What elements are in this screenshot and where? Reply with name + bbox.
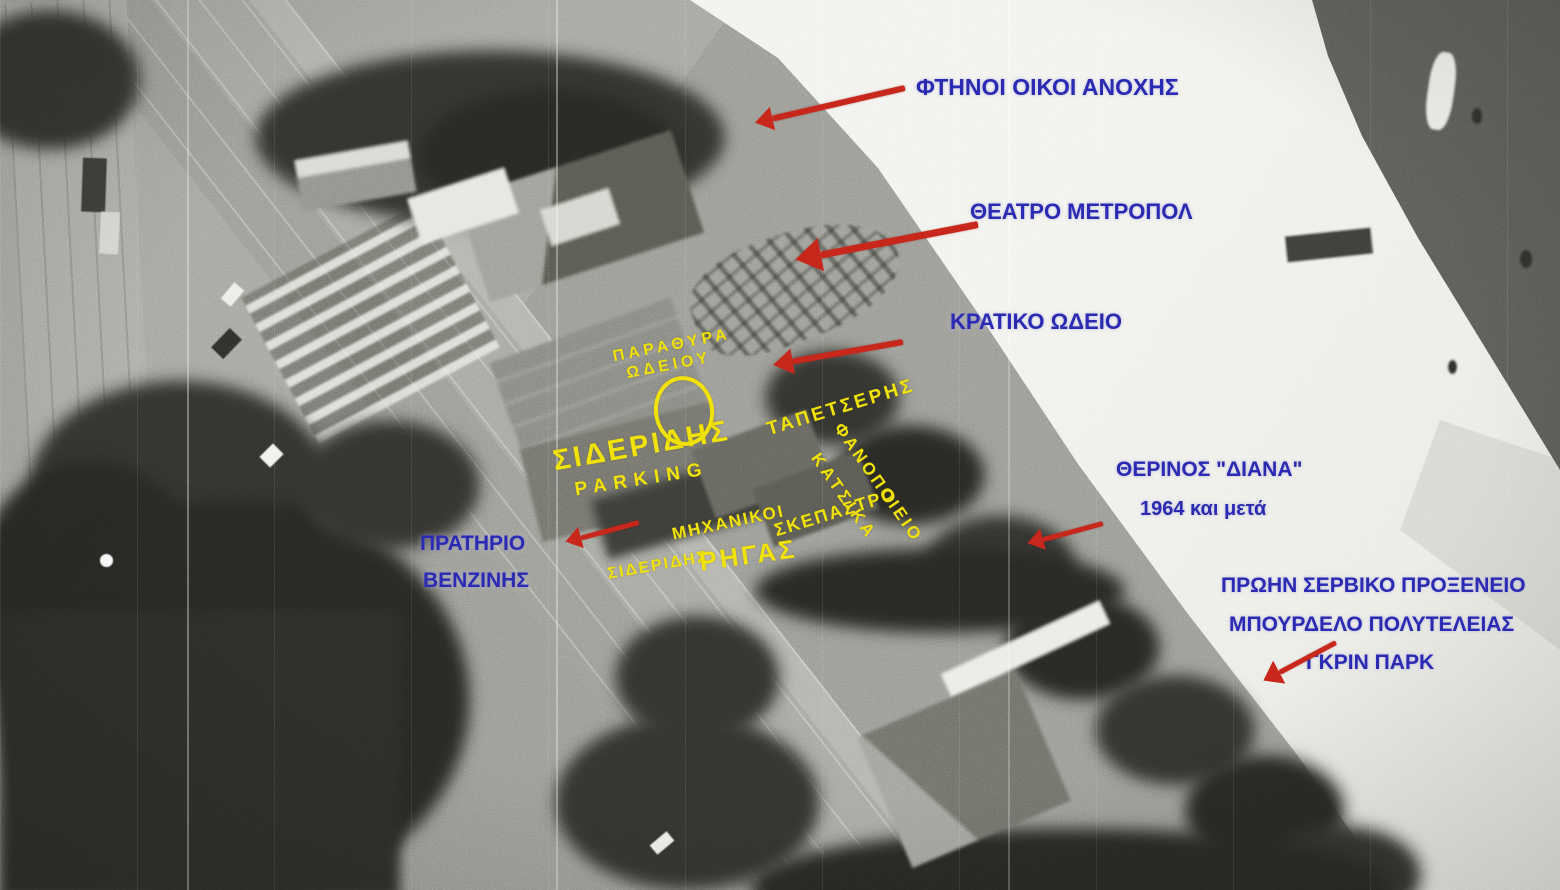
label-diana-cinema-line2: 1964 και μετά <box>1140 499 1266 519</box>
label-petrol-station-line2: ΒΕΝΖΙΝΗΣ <box>423 570 529 591</box>
label-state-conservatory: ΚΡΑΤΙΚΟ ΩΔΕΙΟ <box>950 311 1122 333</box>
annotated-aerial-photo: ΦΤΗΝΟΙ ΟΙΚΟΙ ΑΝΟΧΗΣ ΘΕΑΤΡΟ ΜΕΤΡΟΠΟΛ ΚΡΑΤ… <box>0 0 1560 890</box>
label-former-serbian-consulate: ΠΡΩΗΝ ΣΕΡΒΙΚΟ ΠΡΟΞΕΝΕΙΟ <box>1221 575 1526 596</box>
label-diana-cinema-line1: ΘΕΡΙΝΟΣ "ΔΙΑΝΑ" <box>1116 459 1302 480</box>
label-luxury-brothel: ΜΠΟΥΡΔΕΛΟ ΠΟΛΥΤΕΛΕΙΑΣ <box>1229 614 1514 635</box>
label-green-park: ΓΚΡΙΝ ΠΑΡΚ <box>1306 652 1434 673</box>
label-cheap-brothels: ΦΤΗΝΟΙ ΟΙΚΟΙ ΑΝΟΧΗΣ <box>916 76 1179 99</box>
label-petrol-station-line1: ΠΡΑΤΗΡΙΟ <box>420 533 525 554</box>
photo-vignette <box>0 0 1560 890</box>
label-metropol-theatre: ΘΕΑΤΡΟ ΜΕΤΡΟΠΟΛ <box>970 201 1193 223</box>
